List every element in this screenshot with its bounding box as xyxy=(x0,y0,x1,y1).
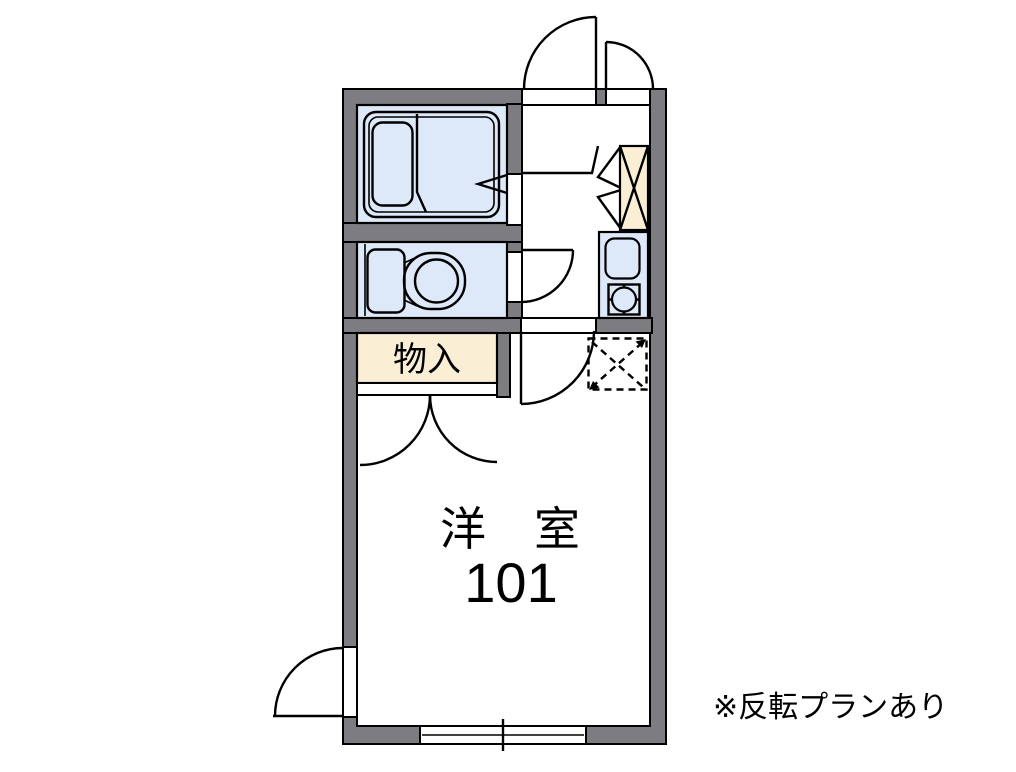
storage-closet-label: 物入 xyxy=(393,340,461,380)
refrigerator-diagonal-2 xyxy=(592,342,643,387)
kitchen-sink xyxy=(606,239,640,279)
floorplan-page: 物入 洋室 101 ※反転プランあり xyxy=(0,0,1016,772)
closet-door-right-swing xyxy=(430,395,497,462)
balcony-door-swing xyxy=(275,648,343,716)
room-door-swing xyxy=(521,331,594,404)
entrance-door-opening-left xyxy=(522,89,596,105)
entrance-door-left-swing xyxy=(524,17,596,89)
reverse-plan-note: ※反転プランあり xyxy=(713,690,948,725)
toilet-door-opening xyxy=(507,252,522,302)
partition-wall-toilet-closet xyxy=(343,318,521,333)
room-door-opening xyxy=(521,318,596,333)
entrance-doors xyxy=(524,17,653,89)
floorplan: 物入 洋室 101 ※反転プランあり xyxy=(0,0,1016,772)
refrigerator-space xyxy=(589,339,647,391)
entrance-center-pillar xyxy=(596,89,606,105)
bath-door-opening xyxy=(507,174,522,225)
balcony-door-opening xyxy=(343,647,357,717)
storage-closet: 物入 xyxy=(357,333,497,465)
entrance-door-right-swing xyxy=(606,42,653,89)
room-number: 101 xyxy=(464,551,557,614)
storage-closet-threshold xyxy=(357,383,497,395)
partition-wall-bath-hall-upper xyxy=(507,104,522,174)
partition-wall-bath-toilet xyxy=(343,223,522,242)
toilet xyxy=(357,242,573,318)
toilet-door-swing xyxy=(521,250,573,302)
folding-door-icon xyxy=(598,146,621,229)
closet-side-pillar xyxy=(497,333,510,397)
entrance-step-line xyxy=(521,146,598,173)
stove-burner-icon xyxy=(612,288,636,312)
entrance-door-opening-right xyxy=(606,89,650,105)
bathroom xyxy=(357,105,507,223)
partition-wall-bath-hall-lower xyxy=(507,302,522,319)
kitchen xyxy=(521,146,648,318)
closet-door-left-swing xyxy=(360,395,430,465)
refrigerator-diagonal-1 xyxy=(592,342,643,387)
partition-wall-kitchen-room xyxy=(596,318,652,333)
room-label: 洋室 xyxy=(440,502,628,556)
